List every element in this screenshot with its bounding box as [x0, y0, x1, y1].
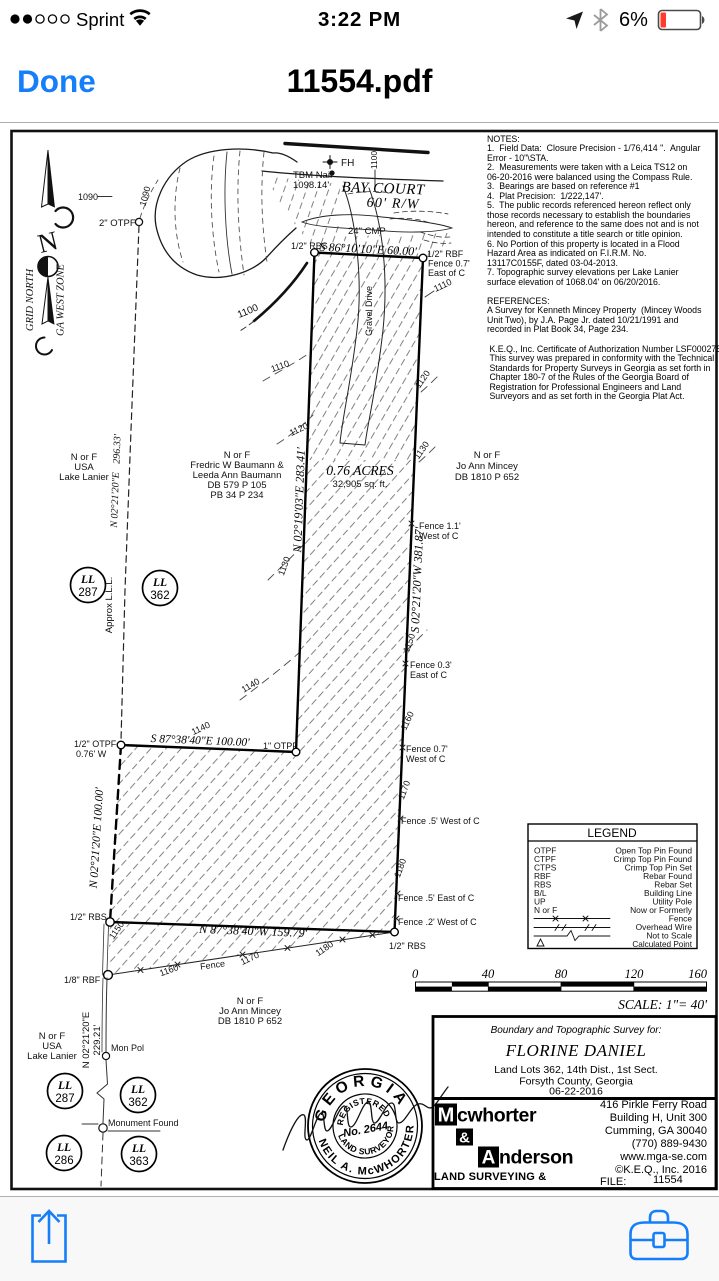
svg-text:Gravel Drive: Gravel Drive: [364, 286, 374, 336]
svg-text:Boundary and Topographic Su: Boundary and Topographic Survey for:: [491, 1025, 662, 1036]
svg-text:229.21': 229.21': [92, 1024, 103, 1055]
svg-text:LL: LL: [131, 1143, 146, 1155]
svg-text:N 02°21'20"E: N 02°21'20"E: [109, 472, 122, 529]
svg-text:Land Lots 362, 14th Dist., 1s: Land Lots 362, 14th Dist., 1st Sect.: [494, 1064, 657, 1076]
svg-text:1/2" RBS: 1/2" RBS: [389, 941, 426, 951]
svg-text:LAND SURVEYING &: LAND SURVEYING &: [434, 1171, 546, 1183]
svg-text:M: M: [438, 1105, 455, 1127]
svg-text:Fence 0.7': Fence 0.7': [406, 744, 448, 754]
svg-text:Building H, Unit 300: Building H, Unit 300: [610, 1112, 707, 1124]
svg-text:N or F: N or F: [474, 450, 501, 461]
svg-text:DB 1810 P 652: DB 1810 P 652: [455, 472, 519, 483]
svg-text:1140: 1140: [240, 676, 262, 694]
svg-text:2" OTPF: 2" OTPF: [99, 218, 136, 229]
svg-text:cwhorter: cwhorter: [457, 1105, 537, 1127]
svg-text:LL: LL: [57, 1080, 72, 1092]
svg-text:363: 363: [129, 1156, 148, 1168]
svg-text:SCALE: 1"= 40': SCALE: 1"= 40': [618, 997, 708, 1012]
svg-text:Cumming, GA 30040: Cumming, GA 30040: [605, 1125, 707, 1137]
svg-text:287: 287: [78, 587, 97, 599]
svg-text:East of C: East of C: [428, 268, 466, 278]
svg-text:1/2" RBS: 1/2" RBS: [70, 912, 107, 922]
svg-text:PB 34 P 234: PB 34 P 234: [210, 490, 263, 501]
svg-text:East of C: East of C: [410, 670, 448, 680]
svg-text:LL: LL: [56, 1142, 71, 1154]
svg-text:N 02°21'20"E: N 02°21'20"E: [81, 1012, 92, 1069]
svg-text:Fence .5' East of C: Fence .5' East of C: [398, 893, 475, 903]
svg-text:N: N: [35, 225, 61, 259]
svg-text:416 Pirkle Ferry Road: 416 Pirkle Ferry Road: [600, 1099, 707, 1111]
svg-text:DB 1810 P 652: DB 1810 P 652: [218, 1016, 282, 1027]
svg-text:1090: 1090: [78, 192, 98, 202]
svg-text:FH: FH: [341, 158, 354, 169]
svg-text:Fence .5' West of C: Fence .5' West of C: [401, 816, 480, 826]
svg-text:1120: 1120: [288, 421, 310, 438]
svg-text:FILE:: FILE:: [600, 1176, 626, 1188]
svg-text:120: 120: [625, 967, 645, 981]
svg-text:Jo Ann Mincey: Jo Ann Mincey: [456, 461, 518, 472]
svg-text:32,905 sq. ft.: 32,905 sq. ft.: [333, 479, 388, 490]
svg-text:40: 40: [482, 967, 495, 981]
svg-text:Fence .2' West of C: Fence .2' West of C: [398, 917, 477, 927]
svg-text:0: 0: [412, 967, 419, 981]
svg-text:1100: 1100: [369, 151, 379, 170]
svg-text:nderson: nderson: [499, 1147, 573, 1169]
svg-text:1110: 1110: [432, 277, 453, 294]
svg-text:&: &: [459, 1130, 470, 1147]
svg-text:West of C: West of C: [419, 531, 459, 541]
svg-text:Fence 0.7': Fence 0.7': [428, 259, 470, 269]
svg-text:West of C: West of C: [406, 754, 446, 764]
svg-text:0.76 ACRES: 0.76 ACRES: [326, 463, 393, 478]
svg-text:362: 362: [128, 1097, 147, 1109]
svg-text:LL: LL: [130, 1084, 145, 1096]
svg-text:296.33': 296.33': [111, 433, 123, 464]
svg-text:Lake Lanier: Lake Lanier: [59, 472, 109, 483]
svg-text:Not to Scale: Not to Scale: [646, 931, 692, 941]
svg-text:LL: LL: [152, 577, 167, 589]
svg-text:GRID NORTH: GRID NORTH: [25, 268, 36, 332]
svg-text:1" OTPF: 1" OTPF: [263, 741, 298, 751]
svg-text:362: 362: [150, 590, 169, 602]
svg-text:GEORGIA: GEORGIA: [305, 1064, 413, 1126]
svg-text:11554: 11554: [653, 1174, 683, 1186]
svg-text:Fence 0.3': Fence 0.3': [410, 660, 452, 670]
svg-text:1/2" RBS: 1/2" RBS: [291, 241, 328, 251]
svg-text:1130: 1130: [276, 555, 292, 577]
svg-text:1/2" RBF: 1/2" RBF: [427, 249, 464, 259]
svg-text:1/2" OTPF: 1/2" OTPF: [74, 739, 117, 749]
svg-text:LL: LL: [80, 574, 95, 586]
svg-text:N or F: N or F: [534, 905, 557, 915]
svg-text:(770) 889-9430: (770) 889-9430: [632, 1138, 707, 1150]
svg-text:80: 80: [555, 967, 568, 981]
svg-text:A: A: [482, 1148, 496, 1169]
svg-text:287: 287: [55, 1093, 74, 1105]
svg-text:Monument Found: Monument Found: [108, 1118, 179, 1128]
svg-text:286: 286: [54, 1155, 73, 1167]
svg-text:www.mga-se.com: www.mga-se.com: [619, 1151, 707, 1163]
svg-text:0.76' W: 0.76' W: [76, 749, 107, 759]
svg-text:Mon Pol: Mon Pol: [111, 1043, 144, 1053]
svg-text:GA WEST ZONE: GA WEST ZONE: [56, 263, 67, 336]
svg-text:160: 160: [688, 967, 708, 981]
svg-text:06-22-2016: 06-22-2016: [549, 1086, 603, 1098]
svg-text:1110: 1110: [269, 358, 290, 374]
svg-text:Fence 1.1': Fence 1.1': [419, 521, 461, 531]
svg-text:FLORINE DANIEL: FLORINE DANIEL: [505, 1041, 647, 1060]
svg-text:1098.14': 1098.14': [293, 180, 329, 191]
svg-text:N 02°21'20"E 100.00': N 02°21'20"E 100.00': [88, 787, 106, 890]
svg-text:1090: 1090: [138, 185, 153, 207]
svg-text:Fence: Fence: [200, 958, 226, 971]
svg-text:LEGEND: LEGEND: [587, 826, 637, 840]
svg-text:Calculated Point: Calculated Point: [632, 940, 692, 949]
svg-text:Lake Lanier: Lake Lanier: [27, 1051, 77, 1062]
svg-text:No. 2644: No. 2644: [342, 1120, 389, 1140]
svg-text:1/8" RBF: 1/8" RBF: [64, 975, 101, 985]
